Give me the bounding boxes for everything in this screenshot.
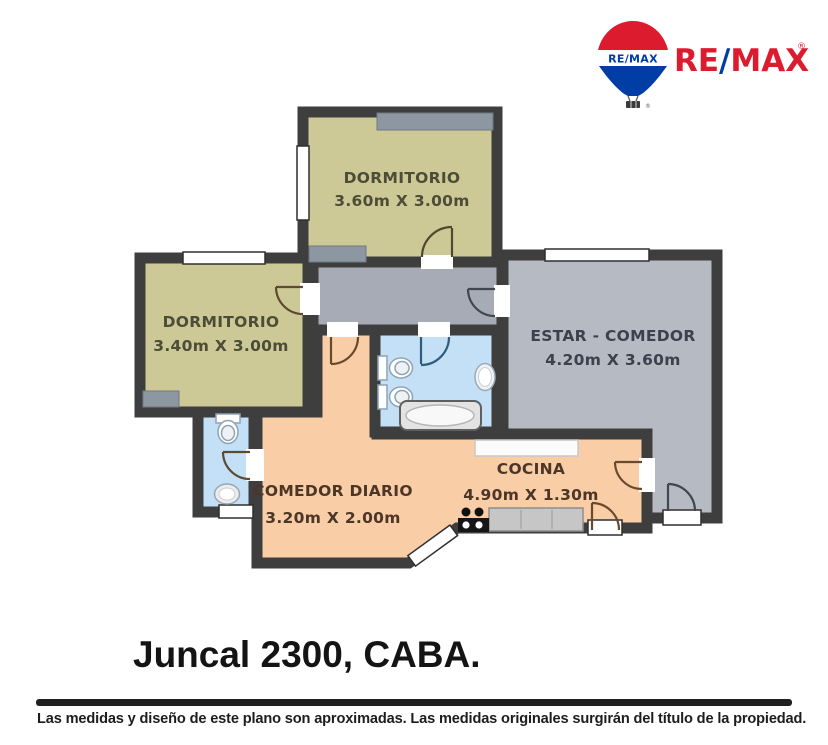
- wordmark-re: RE: [674, 43, 719, 79]
- room-name: COMEDOR DIARIO: [253, 482, 413, 500]
- room-dormitorio-top: [303, 112, 497, 262]
- balloon-text: RE/MAX: [608, 53, 658, 66]
- window: [545, 249, 649, 261]
- divider-line: [36, 699, 792, 706]
- remax-balloon-icon: RE/MAX ®: [595, 21, 671, 110]
- entry-threshold: [663, 510, 701, 525]
- room-name: DORMITORIO: [163, 313, 280, 331]
- window: [219, 505, 253, 518]
- balloon-registered-mark: ®: [645, 103, 651, 110]
- door-opening: [418, 322, 450, 337]
- room-name: DORMITORIO: [344, 169, 461, 187]
- room-dims: 3.20m X 2.00m: [265, 509, 400, 527]
- room-name: COCINA: [497, 460, 565, 478]
- remax-logo: RE/MAX ® RE/MAX ®: [595, 21, 809, 110]
- door-opening: [421, 255, 453, 269]
- wordmark-slash: /: [719, 43, 731, 79]
- room-dims: 4.20m X 3.60m: [545, 351, 680, 369]
- closet: [143, 391, 179, 407]
- room-dims: 3.60m X 3.00m: [334, 192, 469, 210]
- window: [297, 146, 309, 220]
- sink-icon: [215, 484, 240, 504]
- door-opening: [327, 322, 358, 337]
- room-dormitorio-left: [140, 258, 308, 412]
- room-name: ESTAR - COMEDOR: [530, 327, 695, 345]
- counter-top: [475, 440, 578, 456]
- remax-wordmark: RE/MAX ®: [674, 42, 809, 79]
- disclaimer-text: Las medidas y diseño de este plano son a…: [37, 711, 806, 727]
- floor-plan-page: DORMITORIO 3.60m X 3.00m DORMITORIO 3.40…: [0, 0, 828, 745]
- toilet-icon: [378, 356, 413, 380]
- closet: [377, 113, 493, 130]
- door-opening: [494, 285, 510, 317]
- sink-icon: [475, 364, 495, 391]
- room-dims: 4.90m X 1.30m: [463, 486, 598, 504]
- door-opening: [246, 449, 264, 481]
- room-dims: 3.40m X 3.00m: [153, 337, 288, 355]
- svg-text:RE/MAX: RE/MAX: [674, 43, 809, 79]
- room-hallway: [313, 262, 502, 330]
- registered-mark: ®: [797, 42, 806, 52]
- property-title: Juncal 2300, CABA.: [133, 634, 481, 676]
- closet: [309, 246, 366, 262]
- counter-bottom: [489, 508, 583, 531]
- bathtub-icon: [400, 401, 481, 430]
- toilet-icon: [216, 414, 240, 444]
- window: [183, 252, 265, 264]
